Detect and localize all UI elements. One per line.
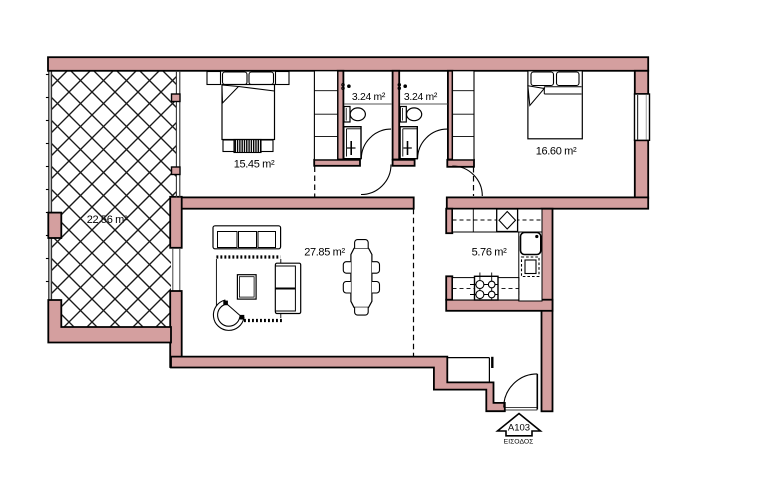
- svg-text:15.45 m²: 15.45 m²: [234, 159, 275, 171]
- svg-text:ΕΙΣΟΔΟΣ: ΕΙΣΟΔΟΣ: [504, 439, 534, 446]
- svg-text:5.76 m²: 5.76 m²: [472, 247, 508, 259]
- svg-text:3.24 m²: 3.24 m²: [352, 92, 386, 103]
- svg-text:22.56 m²: 22.56 m²: [87, 214, 128, 226]
- svg-text:16.60 m²: 16.60 m²: [536, 146, 577, 158]
- svg-text:3.24 m²: 3.24 m²: [404, 92, 438, 103]
- svg-text:27.85 m²: 27.85 m²: [304, 247, 345, 259]
- svg-text:A103: A103: [508, 423, 530, 434]
